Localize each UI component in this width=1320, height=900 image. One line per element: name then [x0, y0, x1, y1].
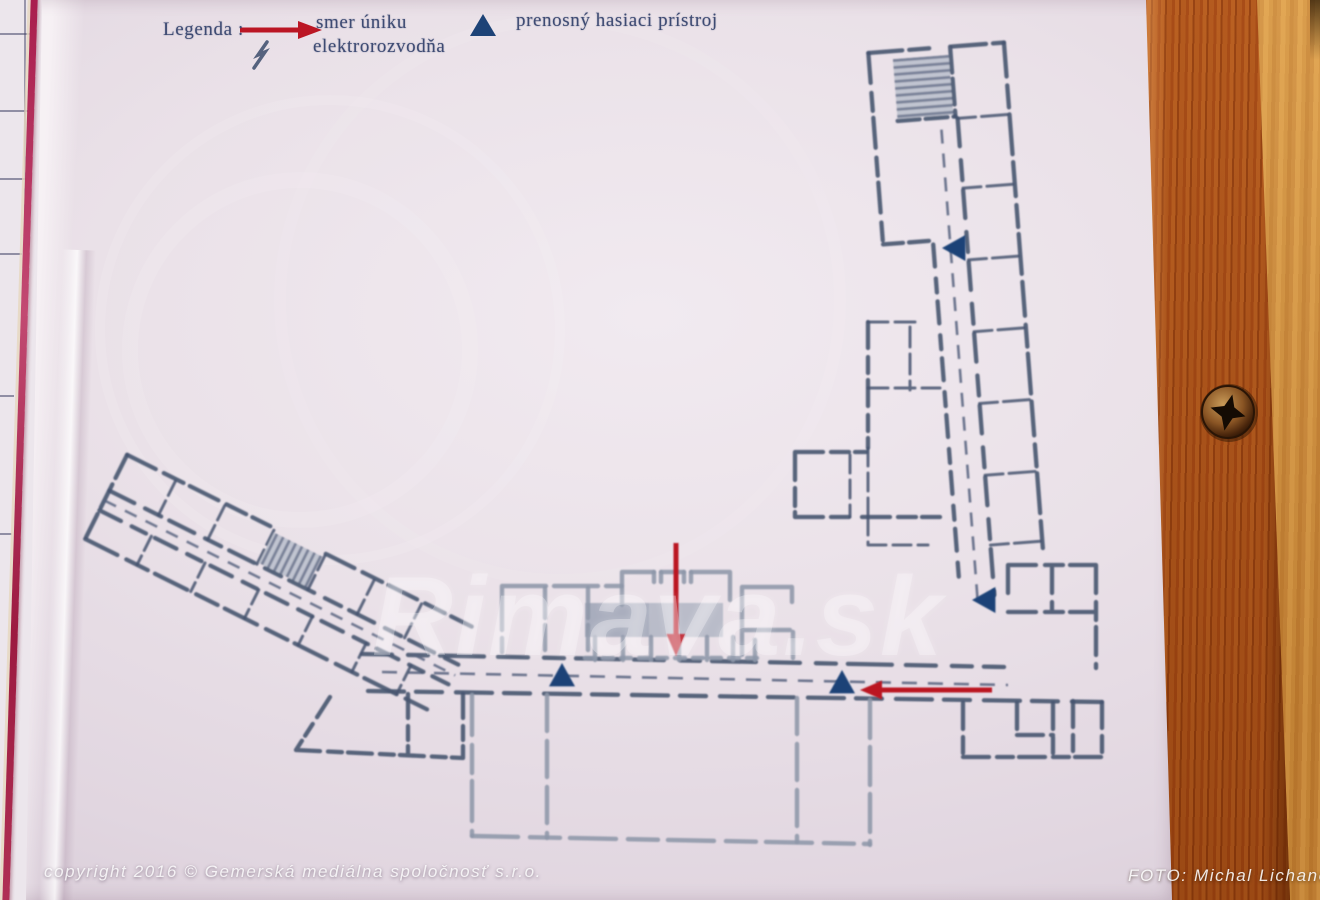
legend-title: Legenda : [163, 19, 244, 41]
junction-spur [296, 694, 463, 758]
legend-label-escape: smer úniku [316, 12, 407, 34]
stairwell [893, 55, 953, 119]
bottom-rooms [472, 695, 870, 845]
legend-electrical-icon [254, 42, 267, 68]
watermark: Rimava.sk [372, 552, 944, 681]
corridor-centerline [941, 130, 977, 599]
legend-escape-arrow-icon [240, 21, 322, 39]
legend-label-extinguisher: prenosný hasiaci prístroj [516, 10, 718, 32]
legend-label-electrical: elektrorozvodňa [313, 36, 445, 58]
floor-plan: .w{stroke:#46546f;stroke-width:4.3;fill:… [0, 0, 1320, 900]
right-wing-annex [795, 322, 940, 545]
fire-extinguisher-marker [972, 587, 995, 613]
screw [1200, 384, 1258, 442]
fire-extinguisher-marker [942, 235, 965, 261]
copyright-text: copyright 2016 © Gemerská mediálna spolo… [44, 862, 542, 882]
notice-board-photo: .w{stroke:#46546f;stroke-width:4.3;fill:… [0, 0, 1320, 900]
photo-credit-text: FOTO: Michal Lichanec [1128, 866, 1320, 886]
